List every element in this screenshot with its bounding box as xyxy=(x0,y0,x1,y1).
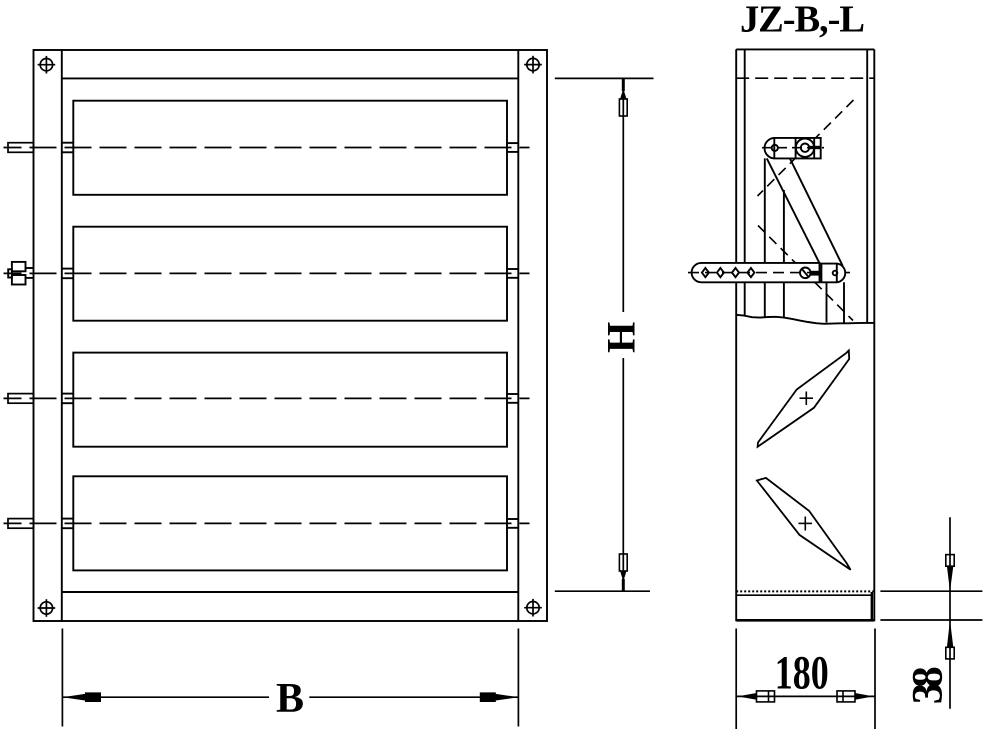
svg-text:B: B xyxy=(276,676,304,722)
svg-text:38: 38 xyxy=(905,666,952,704)
svg-text:180: 180 xyxy=(775,647,829,700)
svg-text:JZ-B,-L: JZ-B,-L xyxy=(740,0,865,41)
svg-text:H: H xyxy=(599,322,644,353)
